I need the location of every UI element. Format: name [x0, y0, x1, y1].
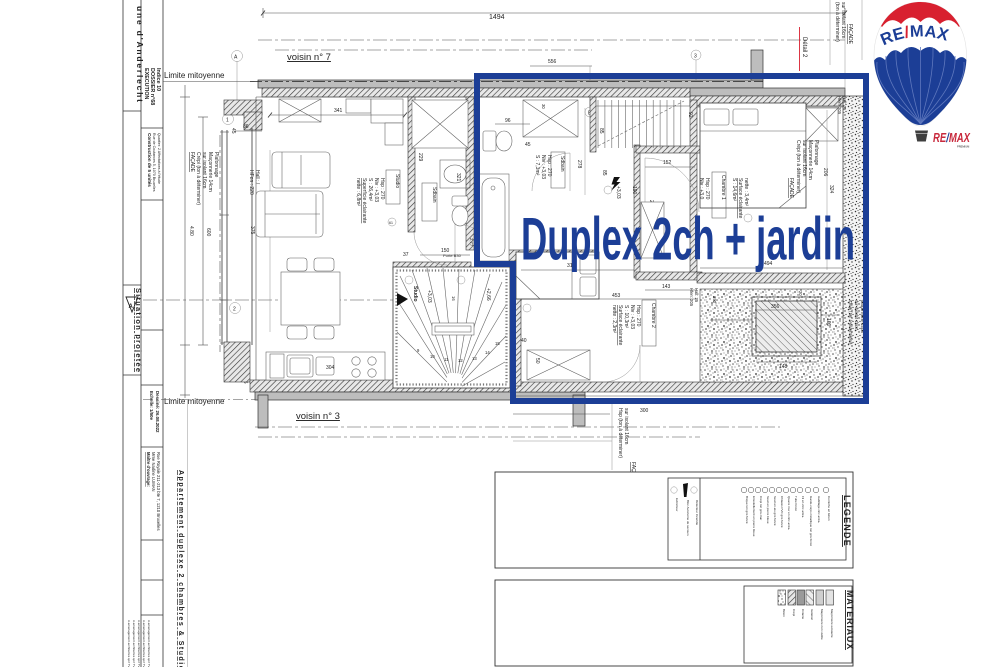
svg-text:Crépi ton gris clair: Crépi ton gris clair — [759, 496, 763, 520]
svg-text:MATERIAUX: MATERIAUX — [845, 590, 855, 650]
svg-text:Maçonnerie 14cm: Maçonnerie 14cm — [207, 152, 213, 192]
svg-text:Hall: 25: Hall: 25 — [694, 288, 699, 303]
svg-text:Plafonnage: Plafonnage — [213, 152, 219, 178]
svg-text:96: 96 — [505, 118, 511, 124]
svg-text:EXECUTION: EXECUTION — [143, 68, 149, 100]
svg-text:Maçonnerie 14cm: Maçonnerie 14cm — [807, 140, 813, 180]
svg-text:voisin n° 7: voisin n° 7 — [287, 52, 331, 63]
svg-text:LEGENDE: LEGENDE — [842, 495, 852, 547]
svg-text:S : 7,3m²: S : 7,3m² — [534, 155, 540, 176]
svg-text:A amenagement architectes sprl: A amenagement architectes sprl TVA 0000.… — [132, 620, 136, 667]
svg-text:Hfen: 205: Hfen: 205 — [689, 288, 694, 307]
svg-text:Hall : /: Hall : / — [254, 170, 260, 185]
svg-text:86: 86 — [243, 124, 249, 130]
svg-text:16: 16 — [451, 296, 456, 301]
svg-text:Echelle: 1/50e: Echelle: 1/50e — [149, 391, 154, 421]
svg-text:3: 3 — [694, 54, 697, 60]
svg-text:600: 600 — [205, 228, 211, 237]
svg-text:37: 37 — [403, 252, 409, 258]
svg-text:Plafonnage: Plafonnage — [813, 140, 819, 166]
svg-text:190: 190 — [631, 186, 637, 195]
svg-text:Chambre 1: Chambre 1 — [720, 175, 726, 200]
svg-text:A amenagement architectes sprl: A amenagement architectes sprl TVA 0000.… — [142, 620, 146, 667]
svg-text:Chambre 2: Chambre 2 — [650, 303, 656, 328]
svg-text:Garde-corps métallique ton gri: Garde-corps métallique ton gris foncé — [809, 496, 813, 546]
svg-text:290: 290 — [712, 296, 717, 304]
svg-text:Crépi (ton à déterminer): Crépi (ton à déterminer) — [195, 152, 201, 205]
svg-text:Hsp (ton à déterminer): Hsp (ton à déterminer) — [617, 408, 623, 458]
svg-text:100: 100 — [825, 318, 831, 327]
svg-text:Quarre mur en zinc antra.: Quarre mur en zinc antra. — [787, 496, 791, 530]
svg-text:Seuil en alu gris foncé: Seuil en alu gris foncé — [773, 496, 777, 526]
svg-text:356: 356 — [771, 304, 780, 310]
svg-text:PREMIUM: PREMIUM — [957, 145, 969, 149]
svg-text:12: 12 — [458, 358, 463, 363]
svg-text:nette : 6,8m²: nette : 6,8m² — [355, 178, 361, 206]
svg-text:10: 10 — [430, 354, 435, 359]
svg-text:(ton à déterminer): (ton à déterminer) — [834, 2, 840, 42]
svg-text:Habillage zinc antra.: Habillage zinc antra. — [817, 496, 821, 523]
svg-text:304: 304 — [326, 365, 335, 371]
svg-text:Dessiné: 26.08.2022: Dessiné: 26.08.2022 — [155, 391, 160, 433]
svg-text:85: 85 — [598, 128, 604, 134]
svg-text:92: 92 — [687, 112, 693, 118]
svg-text:Studio: Studio — [412, 286, 418, 302]
svg-text:Détail 2: Détail 2 — [801, 37, 807, 58]
svg-text:50: 50 — [534, 358, 540, 364]
svg-text:Superficie éclairante: Superficie éclairante — [361, 178, 367, 224]
svg-text:148: 148 — [779, 364, 788, 370]
svg-text:Châssis PVC gris foncé: Châssis PVC gris foncé — [780, 496, 784, 528]
svg-text:278: 278 — [576, 160, 582, 169]
svg-text:FAÇADE: FAÇADE — [189, 152, 195, 173]
svg-text:voisin n° 3: voisin n° 3 — [296, 411, 340, 422]
svg-text:Mme Nadine LUMAN: Mme Nadine LUMAN — [151, 452, 156, 492]
svg-text:Maçonnerie existante: Maçonnerie existante — [830, 609, 834, 638]
svg-text:45: 45 — [525, 142, 531, 148]
svg-text:A amenagement architectes sprl: A amenagement architectes sprl TVA 0000.… — [127, 620, 131, 667]
svg-text:Maître d'ouvrage:: Maître d'ouvrage: — [146, 452, 151, 487]
svg-text:sur isolant 16cm: sur isolant 16cm — [854, 300, 859, 331]
svg-text:Bloc Autonome de secours: Bloc Autonome de secours — [686, 500, 690, 536]
svg-text:152: 152 — [663, 160, 672, 166]
svg-text:11: 11 — [444, 357, 449, 362]
svg-text:A amenagement architectes sprl: A amenagement architectes sprl TVA 0000.… — [147, 620, 151, 667]
svg-text:Duplex 2ch + jardin: Duplex 2ch + jardin — [521, 206, 855, 273]
svg-text:Brique ton gris foncé: Brique ton gris foncé — [745, 496, 749, 524]
svg-text:1: 1 — [226, 118, 229, 124]
svg-text:1494: 1494 — [489, 14, 505, 21]
svg-text:150: 150 — [441, 248, 450, 254]
svg-text:Appartement duplexe 2 chambres: Appartement duplexe 2 chambres & Studio — [177, 470, 184, 667]
svg-text:Tube foncé: Tube foncé — [794, 496, 798, 511]
svg-text:Crilaine: Crilaine — [801, 609, 805, 620]
svg-text:Sdbain: Sdbain — [431, 187, 437, 203]
svg-text:2,77: 2,77 — [469, 238, 474, 247]
svg-text:Rue de Coutances 5, 1070 Bruxe: Rue de Coutances 5, 1070 Bruxelles — [152, 133, 156, 192]
svg-text:Extincteur: Extincteur — [675, 498, 679, 511]
svg-text:143: 143 — [662, 284, 671, 290]
svg-text:341: 341 — [334, 108, 343, 114]
svg-text:+2,66: +2,66 — [485, 288, 491, 301]
svg-text:13: 13 — [472, 356, 477, 361]
svg-text:20: 20 — [798, 291, 803, 296]
svg-text:Limite mitoyenne: Limite mitoyenne — [164, 397, 225, 406]
svg-text:S : 14,6m²: S : 14,6m² — [731, 178, 737, 201]
svg-text:sur isolant 16cm: sur isolant 16cm — [201, 152, 207, 188]
svg-text:61: 61 — [389, 221, 393, 225]
svg-text:14: 14 — [485, 350, 490, 355]
svg-text:+3,03: +3,03 — [615, 186, 621, 199]
svg-text:Crépi (ton à déterminer): Crépi (ton à déterminer) — [848, 300, 853, 345]
svg-text:DOSSIER n°68: DOSSIER n°68 — [149, 68, 155, 105]
svg-text:Seuil en pierre bleue: Seuil en pierre bleue — [766, 496, 770, 524]
svg-text:Fil en zinc antra.: Fil en zinc antra. — [801, 496, 805, 518]
svg-text:4.80: 4.80 — [188, 226, 194, 236]
svg-text:Béton: Béton — [782, 609, 786, 617]
svg-text:Niv : +3,03: Niv : +3,03 — [373, 178, 379, 202]
svg-text:Corniche en béton: Corniche en béton — [827, 496, 831, 521]
svg-text:+3,03: +3,03 — [426, 290, 432, 303]
svg-text:RE/MAX: RE/MAX — [933, 130, 971, 145]
svg-text:300: 300 — [640, 408, 649, 414]
svg-text:30: 30 — [541, 104, 546, 109]
svg-text:Sdbain: Sdbain — [559, 156, 565, 172]
svg-text:453: 453 — [612, 293, 621, 299]
svg-text:HFen : 220: HFen : 220 — [248, 170, 254, 195]
svg-text:324: 324 — [828, 185, 834, 194]
svg-text:nette : 2,3m²: nette : 2,3m² — [611, 305, 617, 333]
svg-text:Studio: Studio — [394, 174, 400, 188]
svg-text:Détecteur Incendie: Détecteur Incendie — [695, 500, 699, 526]
svg-text:Niv : +3,0: Niv : +3,0 — [698, 178, 704, 199]
svg-text:Maçonnerie non visible: Maçonnerie non visible — [820, 609, 824, 640]
svg-text:FAÇADE: FAÇADE — [788, 178, 794, 199]
svg-text:Hsp : 270: Hsp : 270 — [379, 178, 385, 200]
svg-text:Construction de 5 unités: Construction de 5 unités — [147, 133, 152, 187]
svg-text:Ensoleillement en pierre bleue: Ensoleillement en pierre bleue — [752, 496, 756, 537]
svg-text:556: 556 — [548, 59, 557, 65]
svg-text:85: 85 — [601, 170, 607, 176]
svg-text:Crépi (ton à déterminer): Crépi (ton à déterminer) — [795, 140, 801, 193]
svg-text:A: A — [129, 304, 134, 310]
svg-text:Hall: 25: Hall: 25 — [842, 96, 847, 111]
svg-text:S : 26,4m²: S : 26,4m² — [367, 178, 373, 201]
svg-text:Crépi: Crépi — [792, 609, 796, 617]
svg-text:40: 40 — [521, 338, 527, 344]
svg-text:FAÇADE: FAÇADE — [847, 24, 853, 45]
svg-text:Quartier: 2 Affectations à l'é: Quartier: 2 Affectations à l'étude — [157, 133, 161, 184]
svg-text:321: 321 — [455, 173, 461, 182]
svg-text:Rue Royale 211-213 bte 7, 1210: Rue Royale 211-213 bte 7, 1210 Bruxelles — [156, 452, 161, 531]
svg-text:15: 15 — [495, 341, 500, 346]
svg-text:sur isolant 16cm: sur isolant 16cm — [801, 140, 807, 176]
svg-text:sur isolant 16cm: sur isolant 16cm — [623, 408, 629, 444]
svg-text:Hfen: 205: Hfen: 205 — [837, 96, 842, 115]
svg-text:Limite mitoyenne: Limite mitoyenne — [164, 71, 225, 80]
svg-text:nette : 3,4m²: nette : 3,4m² — [743, 178, 749, 206]
svg-text:229: 229 — [417, 153, 423, 162]
svg-text:2: 2 — [233, 307, 236, 313]
svg-text:Niv : +3,03: Niv : +3,03 — [540, 155, 546, 179]
svg-text:Isolation: Isolation — [810, 609, 814, 621]
svg-text:Indice 10: Indice 10 — [155, 68, 161, 91]
svg-text:A amenagement architectes sprl: A amenagement architectes sprl TVA 0000.… — [137, 620, 141, 667]
